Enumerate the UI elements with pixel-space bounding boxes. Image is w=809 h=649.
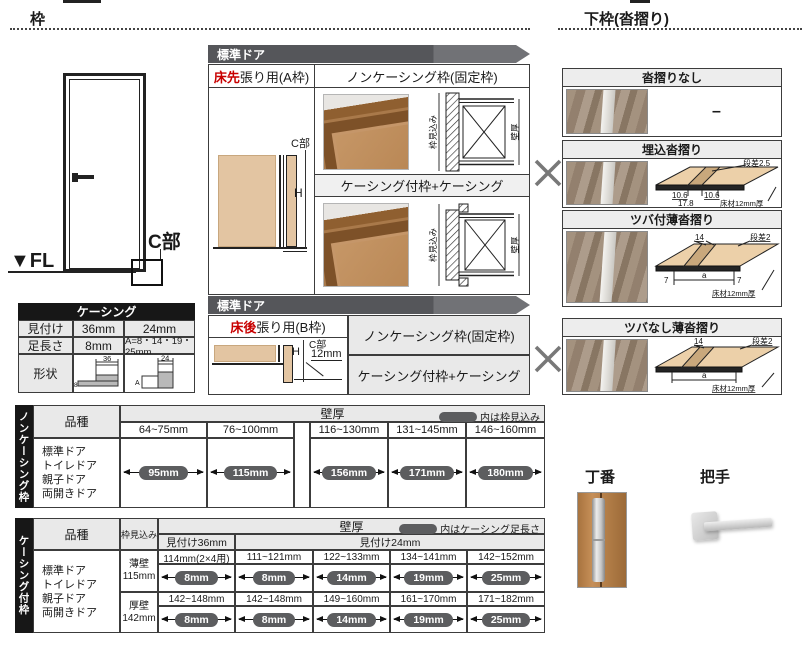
page-crop-mark: [63, 0, 101, 3]
dimension-badge: 25mm: [482, 613, 530, 627]
door-corner-photo-casing: [323, 203, 409, 287]
table1-range-4: 146~160mm: [466, 422, 545, 438]
sill-tsuba-floor: 床材12mm厚: [712, 288, 756, 298]
floor-level-label: ▼FL: [10, 250, 54, 273]
table1-value-2: 156mm: [310, 438, 388, 508]
t2r1-value-2: 14mm: [313, 606, 390, 633]
label: 見付け: [27, 320, 63, 337]
table1-range-3: 131~145mm: [388, 422, 466, 438]
table1-range-1: 76~100mm: [207, 422, 294, 438]
t2r0-range-2: 122~133mm: [313, 550, 390, 564]
t2r1-range-0: 142~148mm: [158, 592, 235, 606]
a-dim-line: [305, 150, 306, 249]
a-frame-diagram: C部 H: [208, 88, 315, 295]
range: 114mm(2×4用): [163, 550, 229, 565]
range: 142~148mm: [246, 594, 302, 605]
floor-line: [8, 271, 136, 273]
dim-jamb-depth-label: 枠見込み: [428, 115, 438, 150]
table1-side-text: ノンケーシング枠: [17, 411, 32, 503]
sill-umekomi-photo: [566, 161, 648, 205]
dim-wall-label: 壁厚: [510, 123, 520, 141]
range: 142~148mm: [169, 594, 225, 605]
section-title-sill: 下枠(沓摺り): [584, 8, 669, 29]
range: 171~182mm: [478, 594, 534, 605]
b-noncasing-cell: ノンケーシング枠(固定枠): [348, 315, 530, 355]
range: 131~145mm: [396, 424, 457, 436]
b-frame-header-rest: 張り用(B枠): [256, 317, 325, 336]
table1-side-label: ノンケーシング枠: [15, 405, 33, 508]
t2r0-value-4: 25mm: [467, 564, 545, 592]
casing-spec-title-label: ケーシング: [77, 303, 137, 320]
door-elevation-figure: [63, 73, 146, 272]
casing-section-diagram: 枠見込み 壁厚: [424, 200, 524, 290]
table1-value-0: 95mm: [120, 438, 207, 508]
sill-none-title: 沓摺りなし: [642, 69, 702, 86]
casing-spec-row1-v36: 36mm: [73, 320, 124, 337]
sill-tsuba-w: 14: [695, 233, 704, 242]
casing-spec-shape24: 24 A: [124, 354, 195, 393]
value: 8mm: [85, 339, 112, 353]
casing-spec-row1-label: 見付け: [18, 320, 73, 337]
t2r1-value-0: 8mm: [158, 606, 235, 633]
table1-range-2: 116~130mm: [310, 422, 388, 438]
sill-tsuba-e1: 7: [664, 276, 669, 285]
casing-spec-row2-label: 足長さ: [18, 337, 73, 354]
table2-mitsuke36-header: 見付け36mm: [158, 534, 235, 550]
b-noncasing-label: ノンケーシング枠(固定枠): [363, 326, 514, 345]
range: 149~160mm: [324, 594, 380, 605]
table1-kinds-cell: 標準ドア トイレドア 親子ドア 両開きドア: [33, 438, 120, 508]
t2r0-value-2: 14mm: [313, 564, 390, 592]
sill-umekomi-d3: 17.8: [678, 199, 694, 207]
b-frame-header: 床後張り用(B枠): [208, 315, 348, 338]
sill-notsuba-floor: 床材12mm厚: [712, 383, 756, 393]
kind: 標準ドア: [42, 564, 86, 578]
sill-tsuba-photo: [566, 231, 648, 303]
sill-notsuba-step: 段差2: [752, 337, 773, 346]
sill-none-dash: –: [712, 103, 721, 121]
noncasing-header-a: ノンケーシング枠(固定枠): [314, 64, 530, 88]
range: 64~75mm: [139, 424, 188, 436]
b-casing-cell: ケーシング付枠+ケーシング: [348, 355, 530, 395]
section-title-frame: 枠: [30, 8, 45, 29]
mitsuke24-label: 見付け24mm: [360, 535, 421, 550]
wall-type: 薄壁: [129, 559, 149, 571]
legend-pill-icon: [399, 524, 437, 534]
sill-none-header: 沓摺りなし: [562, 68, 782, 87]
kind: 両開きドア: [42, 487, 97, 501]
kind: 両開きドア: [42, 606, 97, 620]
leader-line: [306, 362, 324, 376]
door-corner-photo-noncasing: [323, 94, 409, 170]
hinge-photo: [577, 492, 627, 588]
t2r1-value-1: 8mm: [235, 606, 313, 633]
sill-umekomi-header: 埋込沓摺り: [562, 140, 782, 159]
wall-depth: 142mm: [122, 613, 155, 625]
dimension-badge: 171mm: [400, 466, 454, 480]
t2r0-value-3: 19mm: [390, 564, 467, 592]
b-frame-header-red: 床後: [230, 317, 256, 336]
value: 36mm: [82, 322, 115, 336]
table2-mitsuke24-header: 見付け24mm: [235, 534, 545, 550]
sill-notsuba-title: ツバなし薄沓摺り: [624, 319, 720, 336]
casing-header-label: ケーシング付枠+ケーシング: [340, 176, 503, 195]
shape36-width: 36: [103, 355, 111, 363]
table1-value-3: 171mm: [388, 438, 466, 508]
shape36-thickness: 8: [74, 382, 78, 389]
cross-connector-icon: [533, 344, 563, 374]
mitsuke36-label: 見付け36mm: [166, 535, 227, 550]
range: 142~152mm: [478, 552, 534, 563]
a-frame-header-red: 床先: [214, 67, 240, 86]
table2-thickwall-cell: 厚壁 142mm: [120, 592, 158, 633]
handle-photo: [680, 500, 780, 560]
dimension-badge: 25mm: [482, 571, 530, 585]
table2-side-label: ケーシング付枠: [15, 518, 33, 633]
a-floor-line: [213, 247, 307, 249]
casing-spec-shape36: 36 8: [73, 354, 124, 393]
t2r0-range-0: 114mm(2×4用): [158, 550, 235, 564]
b-frame-diagram: C部 H 12mm: [208, 338, 348, 395]
noncasing-header-label: ノンケーシング枠(固定枠): [346, 67, 497, 86]
banner-label: 標準ドア: [217, 46, 265, 63]
door-handle: [76, 175, 94, 179]
sill-tsuba-e2: 7: [737, 276, 742, 285]
table2-wall-header: 壁厚 内はケーシング足長さ: [158, 518, 545, 534]
sill-notsuba-a: a: [702, 371, 707, 380]
dimension-badge: 115mm: [224, 466, 278, 480]
kind: 親子ドア: [42, 473, 86, 487]
dimension-badge: 180mm: [478, 466, 532, 480]
banner-label: 標準ドア: [217, 297, 265, 314]
kind: 標準ドア: [42, 445, 86, 459]
dimension-badge: 14mm: [327, 571, 375, 585]
dimension-badge: 19mm: [404, 571, 452, 585]
handle-label: 把手: [700, 466, 730, 487]
range: 111~121mm: [247, 552, 301, 563]
t2r1-range-3: 161~170mm: [390, 592, 467, 606]
shape24-thickness: A: [135, 380, 140, 387]
b-casing-label: ケーシング付枠+ケーシング: [357, 366, 520, 385]
wall-type: 厚壁: [129, 601, 149, 613]
sill-tsuba-diagram: 14 段差2 7 a 7 床材12mm厚: [650, 230, 781, 305]
sill-umekomi-floor: 床材12mm厚: [720, 198, 764, 207]
standard-door-banner-a: 標準ドア: [208, 45, 530, 63]
shape24-width: 24: [161, 355, 169, 363]
table2-kind-header: 品種: [33, 518, 120, 550]
sill-umekomi-d2: 10.6: [704, 191, 720, 200]
standard-door-banner-b: 標準ドア: [208, 296, 530, 314]
dim-jamb-depth-label: 枠見込み: [428, 228, 438, 263]
range: 146~160mm: [475, 424, 536, 436]
dimension-badge: 8mm: [253, 571, 296, 585]
range: 116~130mm: [319, 424, 380, 436]
table1-value-1: 115mm: [207, 438, 294, 508]
range: 122~133mm: [324, 552, 380, 563]
a-frame-header: 床先張り用(A枠): [208, 64, 315, 88]
sill-none-value: –: [652, 87, 781, 136]
table1-gap-column: [294, 422, 310, 508]
legend-pill-icon: [439, 412, 477, 422]
casing-spec-title: ケーシング: [18, 303, 195, 320]
t2r1-range-4: 171~182mm: [467, 592, 545, 606]
divider: [558, 28, 802, 30]
label: 足長さ: [27, 337, 63, 354]
table2-side-text: ケーシング付枠: [17, 535, 32, 616]
casing-header-a: ケーシング付枠+ケーシング: [314, 174, 530, 197]
dimension-badge: 8mm: [253, 613, 296, 627]
t2r0-range-4: 142~152mm: [467, 550, 545, 564]
casing-spec-row2-v36: 8mm: [73, 337, 124, 354]
range: 76~100mm: [223, 424, 278, 436]
dimension-badge: 14mm: [327, 613, 375, 627]
page-crop-mark: [630, 0, 650, 3]
hinge-label: 丁番: [585, 466, 615, 487]
table2-wall-label: 壁厚: [339, 518, 363, 535]
sill-tsuba-step: 段差2: [750, 232, 771, 242]
table1-kind-label: 品種: [64, 413, 88, 430]
t2r1-value-3: 19mm: [390, 606, 467, 633]
sill-tsuba-title: ツバ付薄沓摺り: [630, 211, 714, 228]
table2-depth-label: 枠見込み: [121, 528, 157, 541]
kind: 親子ドア: [42, 592, 86, 606]
casing-spec-shape-label: 形状: [18, 354, 73, 393]
a-c-part-label: C部: [291, 135, 310, 151]
dimension-badge: 95mm: [139, 466, 187, 480]
wall-depth: 115mm: [123, 571, 156, 583]
t2r0-value-0: 8mm: [158, 564, 235, 592]
sill-notsuba-photo: [566, 339, 648, 392]
table1-wall-header: 壁厚 内は枠見込み: [120, 405, 545, 422]
table1-range-0: 64~75mm: [120, 422, 207, 438]
range: 134~141mm: [401, 552, 457, 563]
t2r0-range-1: 111~121mm: [235, 550, 313, 564]
noncasing-section-diagram: 枠見込み 壁厚: [424, 90, 524, 174]
sill-umekomi-title: 埋込沓摺り: [642, 141, 702, 158]
a-h-label: H: [294, 186, 303, 200]
sill-notsuba-header: ツバなし薄沓摺り: [562, 318, 782, 337]
t2r0-value-1: 8mm: [235, 564, 313, 592]
sill-tsuba-header: ツバ付薄沓摺り: [562, 210, 782, 229]
table2-depth-header: 枠見込み: [120, 518, 158, 550]
divider: [10, 28, 530, 30]
b-h-label: H: [292, 346, 300, 358]
c-part-label: C部: [148, 227, 181, 254]
b-offset-label: 12mm: [311, 348, 342, 361]
table1-value-4: 180mm: [466, 438, 545, 508]
t2r0-range-3: 134~141mm: [390, 550, 467, 564]
range: 161~170mm: [401, 594, 457, 605]
dimension-badge: 19mm: [404, 613, 452, 627]
label: 形状: [33, 365, 57, 382]
a-frame-header-rest: 張り用(A枠): [240, 67, 309, 86]
dimension-badge: 8mm: [175, 613, 218, 627]
kind: トイレドア: [42, 578, 97, 592]
dimension-badge: 8mm: [175, 571, 218, 585]
cross-connector-icon: [533, 158, 563, 188]
sill-umekomi-diagram: 段差2.5 10.6 10.6 17.8 床材12mm厚: [650, 159, 781, 207]
table2-kinds-cell: 標準ドア トイレドア 親子ドア 両開きドア: [33, 550, 120, 633]
dimension-badge: 156mm: [322, 466, 376, 480]
sill-notsuba-w: 14: [694, 337, 703, 346]
catalog-page: 枠 下枠(沓摺り) ▼FL C部 標準ドア 床先張り用(A枠) C部 H ノンケ…: [0, 0, 809, 649]
sill-none-photo: [566, 89, 648, 134]
t2r1-range-1: 142~148mm: [235, 592, 313, 606]
casing-spec-row2-v24: A=8・14・19・25mm: [124, 337, 195, 354]
table1-kind-header: 品種: [33, 405, 120, 438]
table2-thinwall-cell: 薄壁 115mm: [120, 550, 158, 592]
kind: トイレドア: [42, 459, 97, 473]
t2r1-value-4: 25mm: [467, 606, 545, 633]
t2r1-range-2: 149~160mm: [313, 592, 390, 606]
table2-kind-label: 品種: [64, 526, 88, 543]
c-part-box: [131, 259, 163, 286]
sill-notsuba-diagram: 14 段差2 a 床材12mm厚: [650, 337, 781, 394]
sill-tsuba-a: a: [702, 271, 707, 280]
table1-wall-label: 壁厚: [320, 405, 344, 422]
dim-wall-label: 壁厚: [510, 236, 520, 254]
